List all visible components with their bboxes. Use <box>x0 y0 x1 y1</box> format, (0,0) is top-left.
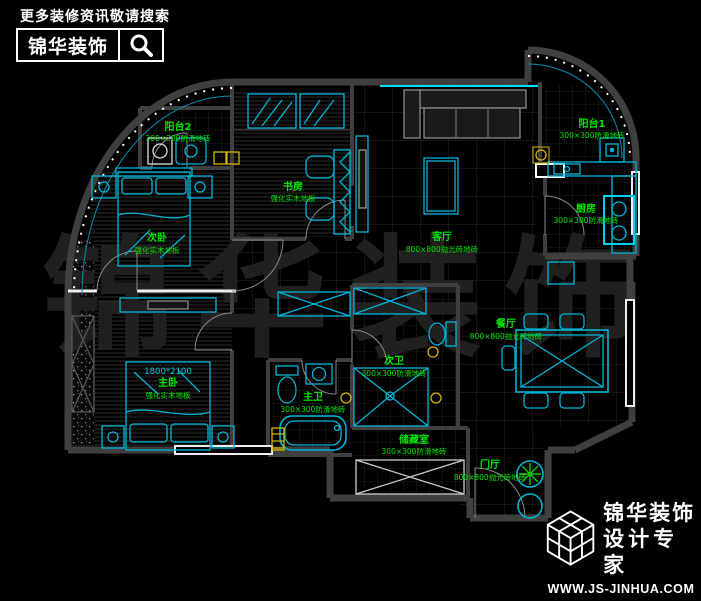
room-material: 800×800抛光砖地砖 <box>470 331 543 341</box>
room-material: 300×300防滑地砖 <box>146 133 211 143</box>
room-material: 300×300防滑地砖 <box>554 215 619 225</box>
room-material: 强化实木地板 <box>271 193 316 203</box>
footer-website: WWW.JS-JINHUA.COM <box>544 582 698 596</box>
room-label: 次卫 <box>384 354 404 367</box>
room-material: 300×300防滑地砖 <box>560 130 625 140</box>
room-material: 强化实木地板 <box>135 245 180 255</box>
tv-icon <box>359 150 366 208</box>
room-material: 800×800抛光砖地砖 <box>406 244 479 254</box>
room-label: 阳台1 <box>579 117 606 130</box>
footer-logo-block: 锦华装饰 设计专家 WWW.JS-JINHUA.COM <box>544 500 698 596</box>
sofa-back <box>418 90 526 108</box>
room-material: 300×300防滑地砖 <box>382 446 447 456</box>
footer-brand: 锦华装饰 <box>603 500 698 526</box>
room-label: 书房 <box>283 180 303 193</box>
sofa-arm <box>404 90 420 138</box>
floorplan-page: 锦华装饰 <box>0 0 701 601</box>
bed-size-label: 1800*2100 <box>144 367 192 377</box>
room-material: 强化实木地板 <box>146 390 191 400</box>
pass-through <box>536 164 564 177</box>
room-label: 主卧 <box>158 376 178 389</box>
cube-lattice-logo <box>544 508 597 570</box>
room-label: 餐厅 <box>495 317 516 330</box>
search-brand-box: 锦华装饰 <box>16 28 164 62</box>
room-label: 主卫 <box>303 390 323 403</box>
sofa-seat <box>424 108 520 138</box>
room-material: 300×300防滑地砖 <box>281 404 346 414</box>
room-material: 300×300防滑地砖 <box>362 368 427 378</box>
dining-window <box>626 300 634 406</box>
brand-name: 锦华装饰 <box>18 30 118 60</box>
room-label: 阳台2 <box>165 120 192 133</box>
magnifier-icon <box>118 30 162 60</box>
room-label: 客厅 <box>431 230 452 243</box>
room-material: 800×800抛光砖地砖 <box>454 472 527 482</box>
room-label: 门厅 <box>480 458 500 471</box>
footer-subtitle: 设计专家 <box>603 526 698 578</box>
tv-icon <box>148 301 188 309</box>
room-label: 储藏室 <box>398 433 429 446</box>
room-label: 厨房 <box>576 202 596 215</box>
header-tagline: 更多装修资讯敬请搜索 <box>20 6 170 26</box>
room-label: 次卧 <box>147 231 167 244</box>
